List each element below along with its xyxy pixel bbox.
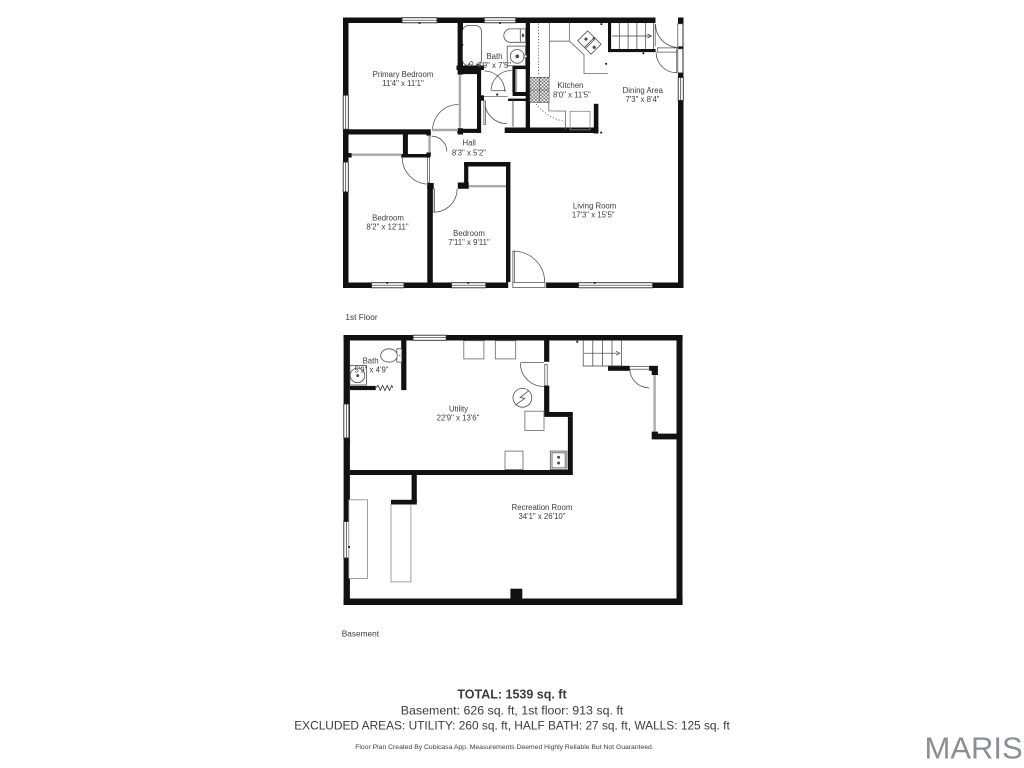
svg-text:22'9" x 13'6": 22'9" x 13'6" <box>437 413 480 422</box>
svg-text:8'0" x 11'5": 8'0" x 11'5" <box>553 90 591 99</box>
svg-text:Bedroom: Bedroom <box>453 229 485 238</box>
svg-text:Floor Plan Created By Cubicasa: Floor Plan Created By Cubicasa App. Meas… <box>355 744 654 751</box>
svg-text:Primary Bedroom: Primary Bedroom <box>373 70 434 79</box>
svg-text:Recreation Room: Recreation Room <box>512 503 573 512</box>
svg-text:Basement: 626 sq. ft, 1st floo: Basement: 626 sq. ft, 1st floor: 913 sq.… <box>401 703 624 717</box>
svg-text:Dining Area: Dining Area <box>623 86 664 95</box>
svg-text:EXCLUDED AREAS: UTILITY: 260 s: EXCLUDED AREAS: UTILITY: 260 sq. ft, HAL… <box>294 719 730 733</box>
svg-text:6'9" x 7'5": 6'9" x 7'5" <box>477 61 511 70</box>
svg-text:Bedroom: Bedroom <box>372 214 404 223</box>
svg-text:TOTAL: 1539 sq. ft: TOTAL: 1539 sq. ft <box>457 687 567 701</box>
svg-text:Living Room: Living Room <box>573 202 616 211</box>
svg-text:Bath: Bath <box>363 357 379 366</box>
svg-text:MARIS: MARIS <box>925 731 1023 766</box>
svg-text:1st Floor: 1st Floor <box>345 312 378 322</box>
svg-text:7'11" x 9'11": 7'11" x 9'11" <box>448 238 490 247</box>
svg-text:Bath: Bath <box>486 52 502 61</box>
svg-text:7'3" x 8'4": 7'3" x 8'4" <box>625 95 659 104</box>
svg-text:Utility: Utility <box>449 404 468 413</box>
svg-text:Hall: Hall <box>462 138 476 147</box>
svg-text:11'4" x 11'1": 11'4" x 11'1" <box>382 79 424 88</box>
svg-text:Kitchen: Kitchen <box>557 81 583 90</box>
svg-text:5'9" x 4'9": 5'9" x 4'9" <box>354 366 388 375</box>
svg-text:34'1" x 26'10": 34'1" x 26'10" <box>518 512 565 521</box>
svg-text:8'3" x 5'2": 8'3" x 5'2" <box>452 149 486 158</box>
svg-text:Basement: Basement <box>342 629 380 639</box>
svg-text:17'3" x 15'5": 17'3" x 15'5" <box>572 211 615 220</box>
svg-text:8'2" x 12'11": 8'2" x 12'11" <box>366 223 408 232</box>
